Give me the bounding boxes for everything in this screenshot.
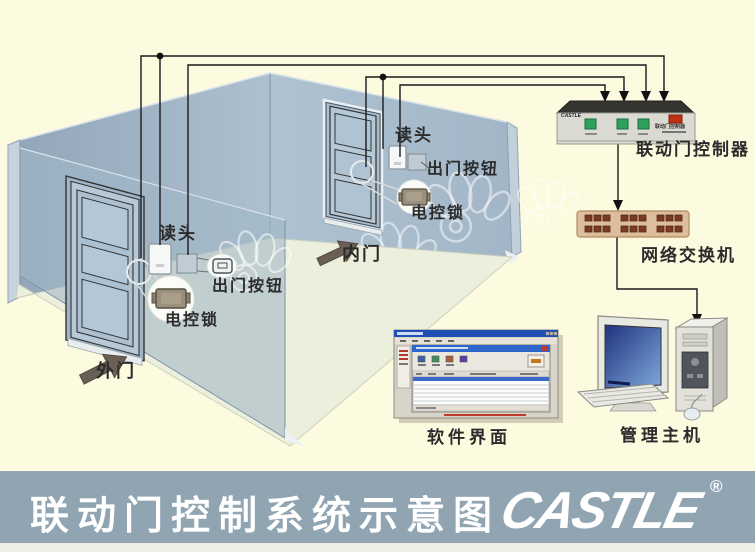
- inner-lock-label: 电控锁: [411, 206, 465, 222]
- network-switch-label: 网络交换机: [641, 247, 736, 264]
- screenshot-root: 读头 出门按钮 电控锁 外门 读头 出门按钮 电控锁 内门 联动门控制器 网络交…: [0, 0, 755, 552]
- title-banner: 联动门控制系统示意图 CASTLE ®: [0, 471, 755, 543]
- inner-door: [324, 100, 382, 235]
- outer-reader-label: 读头: [159, 225, 197, 242]
- controller-button-green: [585, 119, 596, 129]
- outer-exit-button-label: 出门按钮: [212, 279, 284, 295]
- inner-exit-button-label: 出门按钮: [427, 162, 499, 178]
- electric-lock-icon: [152, 289, 190, 308]
- management-host-label: 管理主机: [620, 427, 704, 444]
- diagram-title: 联动门控制系统示意图: [30, 485, 500, 541]
- bottom-strip: [0, 543, 755, 552]
- inner-reader-label: 读头: [395, 127, 433, 144]
- controller-brand-text: CASTLE: [561, 113, 581, 119]
- controller-indicator-red: [669, 115, 682, 123]
- network-switch: [577, 211, 689, 237]
- outer-door: [66, 176, 144, 366]
- controller-button-green: [638, 119, 649, 129]
- controller-label: 联动门控制器: [636, 141, 750, 158]
- card-reader-icon: [149, 244, 171, 274]
- registered-trademark-icon: ®: [710, 477, 723, 497]
- card-reader-icon: [389, 146, 406, 169]
- system-diagram: 读头 出门按钮 电控锁 外门 读头 出门按钮 电控锁 内门 联动门控制器 网络交…: [0, 0, 755, 471]
- controller-button-green: [617, 119, 628, 129]
- exit-button-icon: [408, 154, 426, 170]
- controller-faceplate-text: 联动门控制器: [655, 123, 685, 130]
- exit-button-icon: [177, 254, 197, 273]
- mouse: [684, 408, 700, 420]
- inner-door-label: 内门: [342, 245, 382, 263]
- software-label: 软件界面: [427, 429, 511, 446]
- outer-door-label: 外门: [96, 362, 136, 380]
- diagram-canvas: [0, 0, 755, 471]
- castle-logo: CASTLE: [495, 481, 705, 541]
- electric-lock-icon: [399, 189, 430, 205]
- outer-lock-label: 电控锁: [165, 313, 219, 329]
- management-host: [578, 316, 727, 420]
- software-window: [394, 330, 563, 423]
